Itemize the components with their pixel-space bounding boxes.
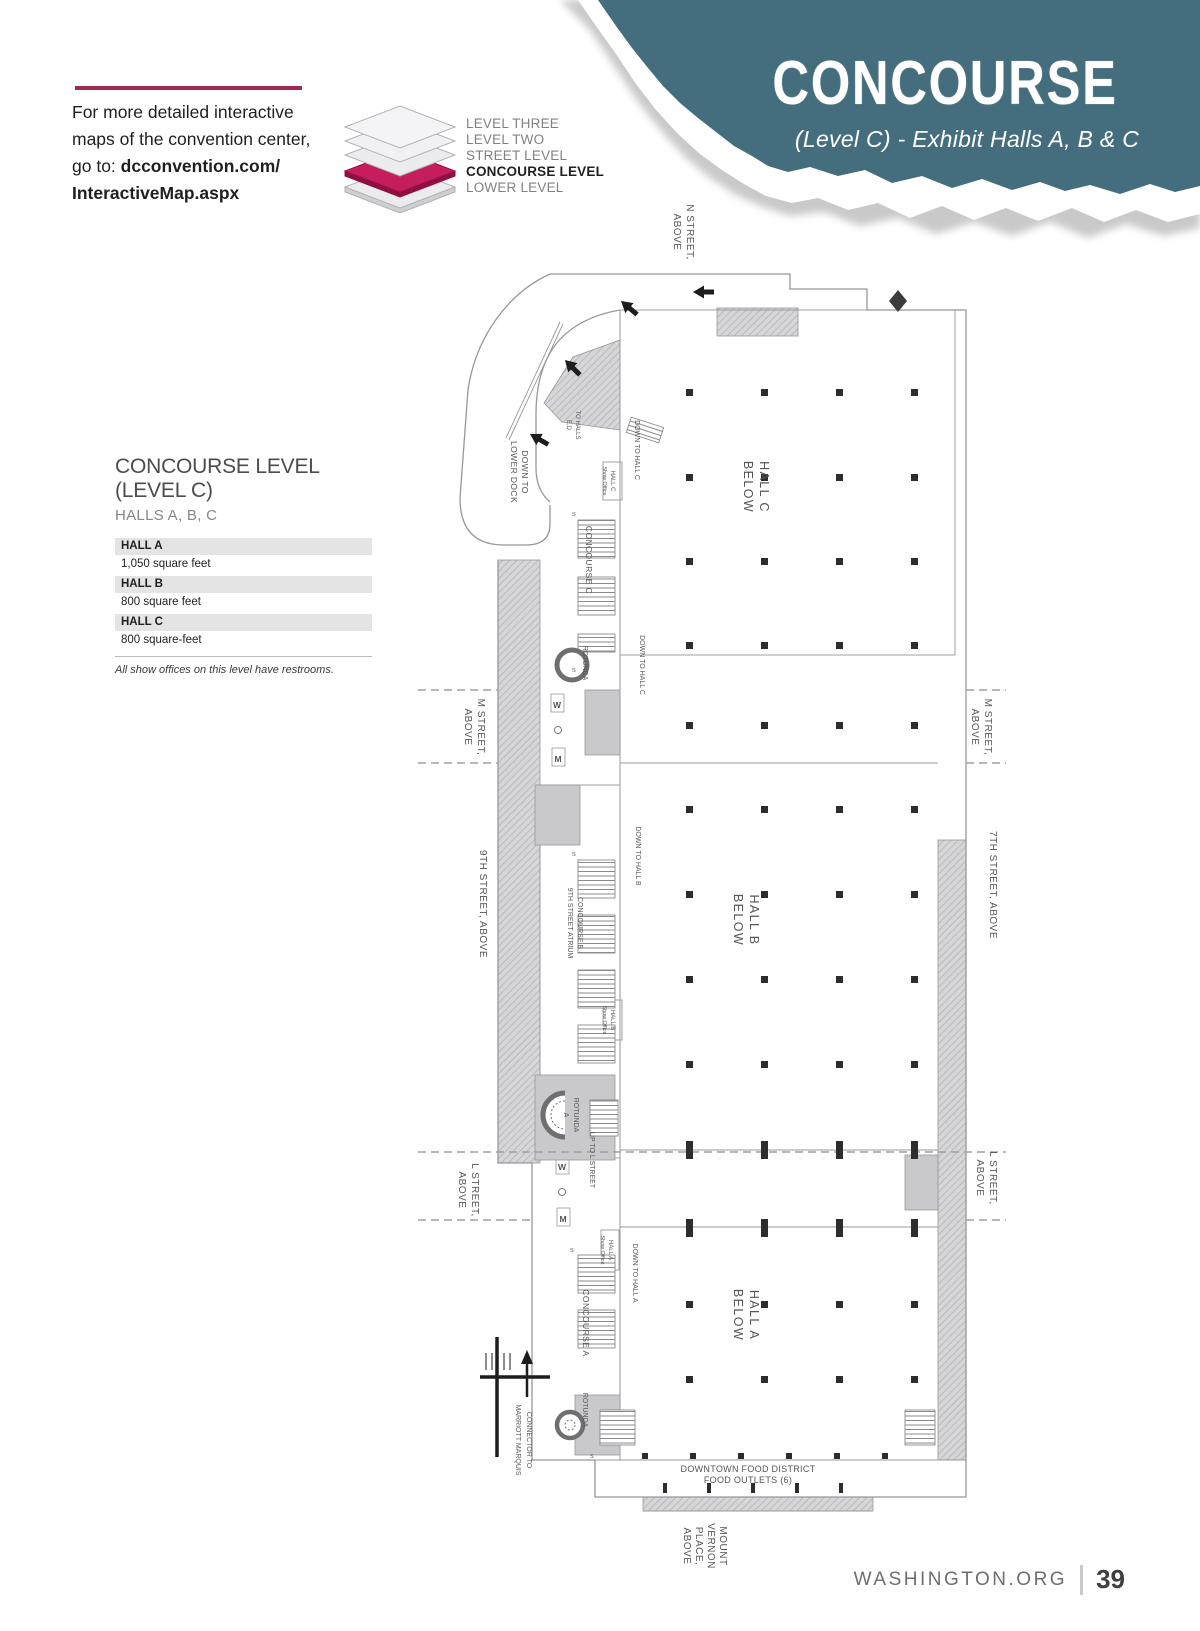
- svg-text:E,D: E,D: [565, 420, 571, 431]
- svg-text:ABOVE: ABOVE: [974, 1160, 985, 1197]
- hall-a-office-label: HALL A: [607, 1240, 613, 1260]
- svg-text:M STREET,: M STREET,: [475, 699, 486, 756]
- svg-text:S: S: [572, 852, 576, 858]
- concourse-b-label: CONCOURSE B 9TH STREET ATRIUM: [566, 888, 583, 959]
- compass-north-icon: [889, 290, 907, 312]
- m-street-label-east: M STREET, ABOVE: [969, 699, 993, 756]
- restroom-note: All show offices on this level have rest…: [115, 656, 372, 676]
- promo-line2: maps of the convention center,: [72, 129, 310, 149]
- hall-c-name: HALL C: [115, 614, 372, 631]
- svg-text:L STREET,: L STREET,: [987, 1151, 998, 1205]
- svg-text:9TH STREET ATRIUM: 9TH STREET ATRIUM: [566, 888, 573, 959]
- svg-text:BELOW: BELOW: [731, 894, 745, 946]
- info-subtitle: HALLS A, B, C: [115, 507, 372, 524]
- hall-labels: HALL C BELOW HALL B BELOW HALL A BELOW: [731, 461, 771, 1341]
- n-street-label: N STREET, ABOVE: [671, 204, 695, 260]
- svg-text:CONCOURSE C: CONCOURSE C: [584, 526, 594, 594]
- level-key-lower: LOWER LEVEL: [466, 180, 604, 196]
- svg-text:S: S: [570, 1248, 574, 1254]
- svg-text:ABOVE: ABOVE: [456, 1172, 467, 1209]
- svg-text:TO HALLS: TO HALLS: [574, 411, 580, 440]
- footer-site: WASHINGTON.ORG: [854, 1569, 1067, 1591]
- info-panel: CONCOURSE LEVEL (LEVEL C) HALLS A, B, C …: [115, 455, 372, 676]
- svg-text:CONNECTOR TO: CONNECTOR TO: [525, 1412, 532, 1469]
- restroom-w-icon: W: [553, 700, 562, 710]
- svg-text:9TH STREET, ABOVE: 9TH STREET, ABOVE: [477, 850, 488, 958]
- svg-text:BELOW: BELOW: [731, 1289, 745, 1341]
- svg-text:DOWN TO HALL B: DOWN TO HALL B: [634, 826, 641, 886]
- down-to-hall-b-label: DOWN TO HALL B: [634, 826, 641, 886]
- svg-text:ABOVE: ABOVE: [681, 1528, 692, 1565]
- svg-text:N STREET,: N STREET,: [684, 204, 695, 260]
- promo-url-1: dcconvention.com/: [121, 156, 280, 176]
- svg-text:Show Office: Show Office: [601, 467, 607, 496]
- l-street-label-west: L STREET, ABOVE: [456, 1163, 480, 1217]
- down-to-hall-c-label-1: DOWN TO HALL C: [633, 420, 640, 480]
- concourse-a-label: CONCOURSE A: [581, 1289, 591, 1356]
- down-to-hall-c-label-2: DOWN TO HALL C: [638, 635, 645, 695]
- circulation-labels: CONCOURSE C CONCOURSE B 9TH STREET ATRIU…: [509, 411, 816, 1485]
- svg-text:LOWER DOCK: LOWER DOCK: [509, 441, 519, 503]
- hall-b-name: HALL B: [115, 576, 372, 593]
- restroom-m-icon: M: [554, 754, 561, 764]
- promo-rule: [75, 86, 302, 90]
- food-district-label: DOWNTOWN FOOD DISTRICT: [681, 1464, 816, 1474]
- svg-text:S: S: [590, 1454, 594, 1460]
- hall-b-below-label: HALL B BELOW: [731, 894, 761, 946]
- svg-text:M STREET,: M STREET,: [982, 699, 993, 756]
- svg-text:A: A: [562, 1113, 569, 1118]
- hall-c-size: 800 square-feet: [115, 631, 372, 652]
- svg-text:M: M: [559, 1214, 566, 1224]
- floor-plan-map: N STREET, ABOVE M STREET, ABOVE M STREET…: [410, 200, 1010, 1575]
- svg-text:FOOD OUTLETS (6): FOOD OUTLETS (6): [704, 1475, 792, 1485]
- l-street-label-east: L STREET, ABOVE: [974, 1151, 998, 1205]
- concourse-c-label: CONCOURSE C: [584, 526, 594, 594]
- page-title: CONCOURSE: [736, 48, 1154, 119]
- rotunda-label-bottom: ROTUNDA: [581, 1393, 588, 1428]
- ninth-street-label: 9TH STREET, ABOVE: [477, 850, 488, 958]
- svg-text:VERNON: VERNON: [705, 1523, 716, 1569]
- level-key: LEVEL THREE LEVEL TWO STREET LEVEL CONCO…: [466, 116, 604, 196]
- svg-text:MOUNT: MOUNT: [717, 1526, 728, 1565]
- page-subtitle: (Level C) - Exhibit Halls A, B & C: [734, 126, 1200, 153]
- seventh-street-label: 7TH STREET, ABOVE: [987, 831, 998, 939]
- magazine-page: CONCOURSE (Level C) - Exhibit Halls A, B…: [0, 0, 1200, 1631]
- page-footer: WASHINGTON.ORG 39: [854, 1564, 1125, 1595]
- hall-c-office-label: HALL C: [609, 471, 615, 492]
- stairs-label: S: [572, 512, 576, 518]
- connector-arrow-icon: [521, 1350, 533, 1364]
- hall-size-table: HALL A 1,050 square feet HALL B 800 squa…: [115, 538, 372, 652]
- svg-text:HALL C: HALL C: [757, 461, 771, 513]
- hall-a-below-label: HALL A BELOW: [731, 1289, 761, 1341]
- svg-text:CONCOURSE B: CONCOURSE B: [576, 897, 583, 949]
- footer-divider: [1080, 1565, 1083, 1595]
- level-key-concourse: CONCOURSE LEVEL: [466, 164, 604, 180]
- svg-text:ABOVE: ABOVE: [969, 709, 980, 746]
- svg-text:DOWN TO HALL A: DOWN TO HALL A: [631, 1244, 638, 1303]
- hall-b-size: 800 square feet: [115, 593, 372, 614]
- hall-columns: [642, 389, 918, 1493]
- m-street-label-west: M STREET, ABOVE: [462, 699, 486, 756]
- connector-label: CONNECTOR TO MARRIOTT MARQUIS: [514, 1404, 532, 1475]
- svg-text:PLACE,: PLACE,: [693, 1527, 704, 1566]
- svg-text:UP TO L STREET: UP TO L STREET: [588, 1132, 595, 1189]
- svg-text:CONCOURSE A: CONCOURSE A: [581, 1289, 591, 1356]
- level-key-street: STREET LEVEL: [466, 148, 604, 164]
- svg-text:W: W: [558, 1162, 567, 1172]
- svg-text:DOWN TO HALL C: DOWN TO HALL C: [633, 420, 640, 480]
- svg-text:ABOVE: ABOVE: [462, 709, 473, 746]
- level-key-two: LEVEL TWO: [466, 132, 604, 148]
- promo-url-2: InteractiveMap.aspx: [72, 183, 239, 203]
- svg-text:MARRIOTT MARQUIS: MARRIOTT MARQUIS: [514, 1404, 521, 1475]
- floor-plan-svg: N STREET, ABOVE M STREET, ABOVE M STREET…: [410, 200, 1010, 1575]
- promo-text: For more detailed interactive maps of th…: [72, 99, 352, 207]
- svg-text:S: S: [572, 668, 576, 674]
- info-title: CONCOURSE LEVEL (LEVEL C): [115, 455, 372, 503]
- promo-line3: go to:: [72, 156, 121, 176]
- svg-text:Show Office: Show Office: [601, 1006, 607, 1035]
- rotunda-label-top: ROTUNDA: [581, 646, 588, 681]
- hall-b-office-label: HALL B: [609, 1010, 615, 1030]
- svg-text:Show Office: Show Office: [599, 1236, 605, 1265]
- svg-text:HALL A: HALL A: [747, 1290, 761, 1340]
- svg-text:ABOVE: ABOVE: [671, 214, 682, 251]
- up-to-l-street-label: UP TO L STREET: [588, 1132, 595, 1189]
- page-number: 39: [1096, 1564, 1125, 1595]
- hall-c-below-label: HALL C BELOW: [741, 461, 771, 513]
- svg-text:L STREET,: L STREET,: [469, 1163, 480, 1217]
- hall-a-name: HALL A: [115, 538, 372, 555]
- level-key-three: LEVEL THREE: [466, 116, 604, 132]
- mount-vernon-label: MOUNT VERNON PLACE, ABOVE: [681, 1523, 728, 1569]
- hall-a-size: 1,050 square feet: [115, 555, 372, 576]
- svg-text:ROTUNDA: ROTUNDA: [572, 1098, 579, 1133]
- svg-text:ROTUNDA: ROTUNDA: [581, 1393, 588, 1428]
- down-to-lower-dock-label: DOWN TO LOWER DOCK: [509, 441, 530, 503]
- svg-text:ROTUNDA: ROTUNDA: [581, 646, 588, 681]
- svg-text:7TH STREET, ABOVE: 7TH STREET, ABOVE: [987, 831, 998, 939]
- svg-text:HALL B: HALL B: [747, 894, 761, 945]
- promo-line1: For more detailed interactive: [72, 102, 294, 122]
- svg-text:DOWN TO HALL C: DOWN TO HALL C: [638, 635, 645, 695]
- svg-text:DOWN TO: DOWN TO: [520, 450, 530, 494]
- down-to-hall-a-label: DOWN TO HALL A: [631, 1244, 638, 1303]
- svg-text:BELOW: BELOW: [741, 461, 755, 513]
